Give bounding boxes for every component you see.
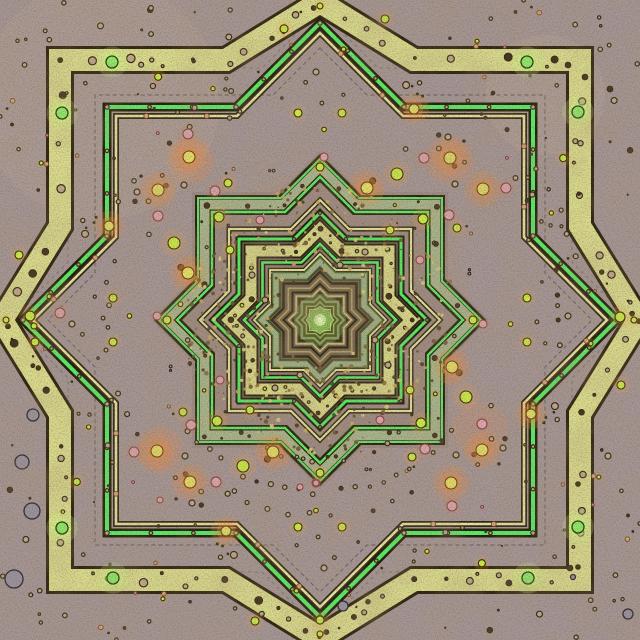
grain-overlay bbox=[0, 0, 640, 640]
fractal-star-artwork bbox=[0, 0, 640, 640]
fractal-star-canvas bbox=[0, 0, 640, 640]
